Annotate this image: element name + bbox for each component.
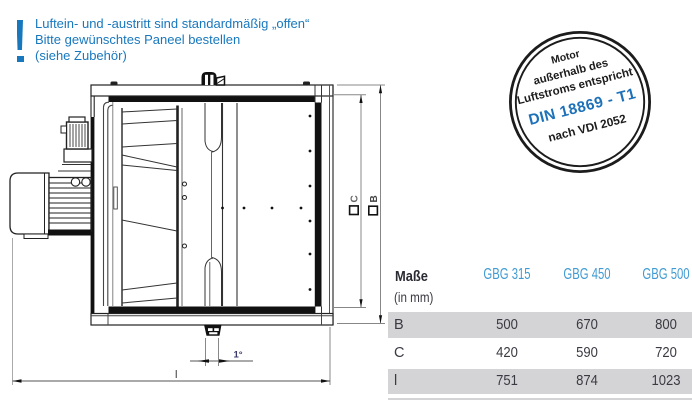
svg-text:1°: 1° xyxy=(234,350,243,361)
svg-text:B: B xyxy=(369,195,380,202)
svg-text:C: C xyxy=(350,195,361,202)
svg-text:l: l xyxy=(175,369,177,381)
